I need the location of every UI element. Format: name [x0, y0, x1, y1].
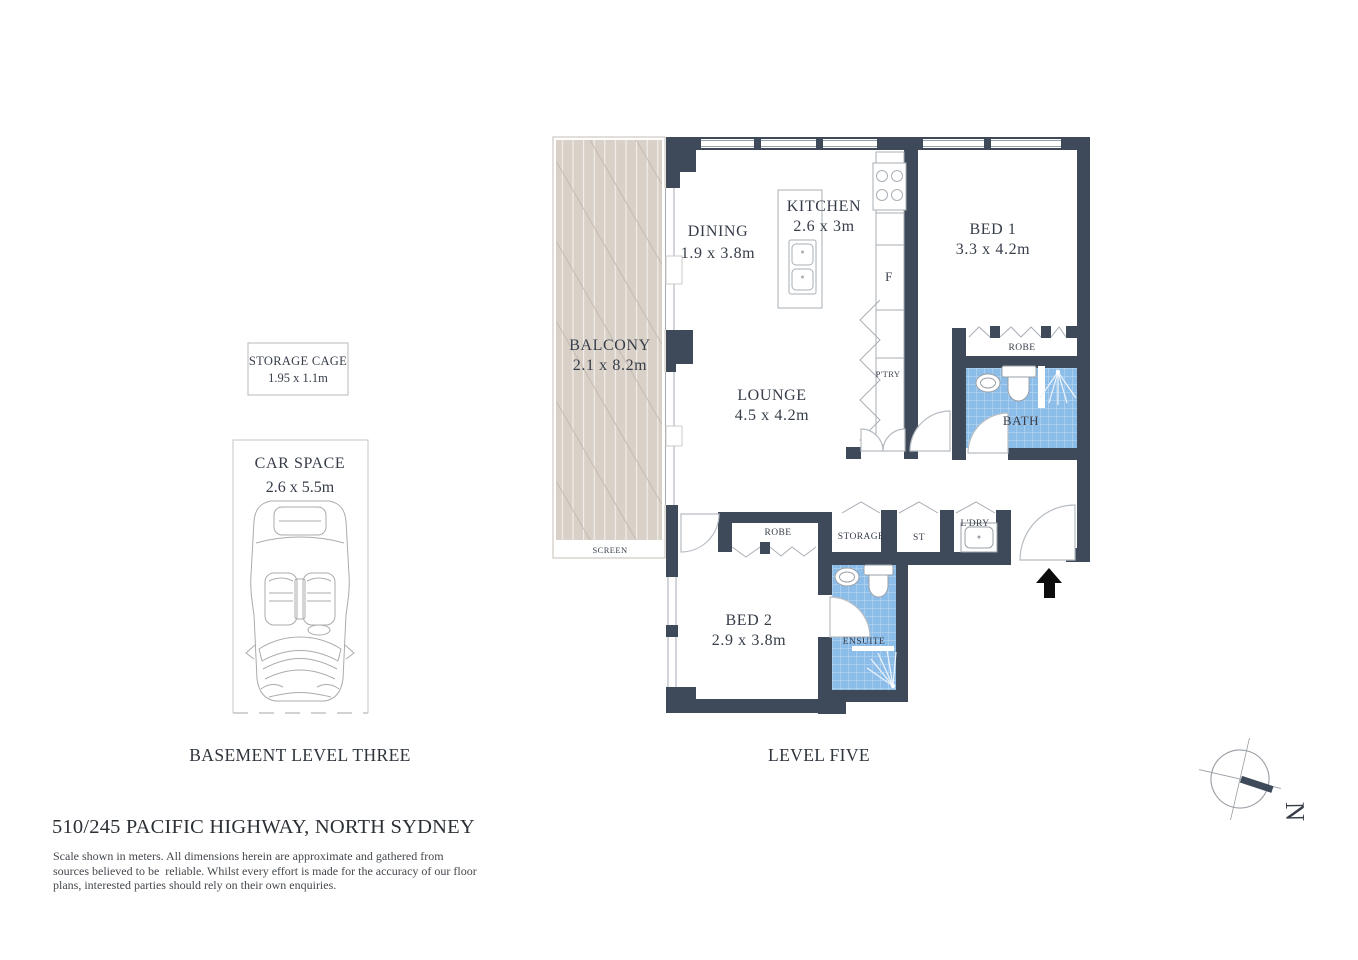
disclaimer-line: Scale shown in meters. All dimensions he… — [53, 849, 477, 864]
dining-label: DINING — [688, 223, 748, 240]
window-frame-mark — [666, 426, 682, 446]
st-label: ST — [913, 533, 925, 543]
disclaimer-line: sources believed to be reliable. Whilst … — [53, 864, 477, 879]
robe-bed2-label: ROBE — [765, 528, 792, 538]
basin-icon — [976, 374, 1000, 392]
disclaimer-text: Scale shown in meters. All dimensions he… — [53, 849, 477, 893]
level-caption: LEVEL FIVE — [704, 745, 934, 766]
address-title: 510/245 PACIFIC HIGHWAY, NORTH SYDNEY — [52, 816, 475, 839]
bed2-dims: 2.9 x 3.8m — [712, 632, 786, 649]
entry-door — [1020, 505, 1075, 560]
bath-label: BATH — [1003, 413, 1039, 428]
car-space-dims: 2.6 x 5.5m — [266, 479, 335, 496]
storage-cage-title: STORAGE CAGE — [249, 354, 347, 368]
entry-arrow-icon — [1036, 568, 1062, 598]
pantry-label: P'TRY — [876, 369, 901, 379]
lounge-dims: 4.5 x 4.2m — [735, 407, 809, 424]
sink-icon — [789, 240, 816, 294]
disclaimer-line: plans, interested parties should rely on… — [53, 878, 477, 893]
laundry-label: L'DRY — [960, 519, 989, 529]
car-icon — [246, 501, 354, 701]
bed2-label: BED 2 — [726, 612, 773, 629]
robe-bed1-label: ROBE — [1009, 343, 1036, 353]
screen-label: SCREEN — [593, 545, 628, 555]
ensuite-label: ENSUITE — [843, 637, 885, 647]
window-frame-mark — [666, 256, 682, 284]
storage-label: STORAGE — [838, 532, 884, 542]
lounge-label: LOUNGE — [737, 387, 806, 404]
stove-icon — [873, 163, 906, 210]
car-space-box: CAR SPACE 2.6 x 5.5m — [233, 440, 368, 713]
bed1-label: BED 1 — [970, 221, 1017, 238]
storage-cage-dims: 1.95 x 1.1m — [268, 371, 328, 385]
dining-dims: 1.9 x 3.8m — [681, 245, 755, 262]
basin-icon — [835, 568, 859, 586]
fridge-label: F — [885, 269, 893, 284]
car-space-title: CAR SPACE — [255, 455, 346, 472]
balcony-dims: 2.1 x 8.2m — [573, 357, 647, 374]
storage-cage-box: STORAGE CAGE 1.95 x 1.1m — [248, 343, 348, 395]
kitchen-label: KITCHEN — [787, 198, 861, 215]
compass-north-label: N — [1280, 802, 1310, 822]
basement-caption: BASEMENT LEVEL THREE — [186, 745, 414, 766]
shower-screen — [1038, 366, 1045, 408]
floorplan-page: STORAGE CAGE 1.95 x 1.1m CAR SPACE 2.6 x… — [0, 0, 1358, 960]
kitchen-dims: 2.6 x 3m — [793, 218, 854, 235]
compass-icon: N — [1190, 729, 1326, 838]
bed2-door — [681, 514, 719, 552]
bed1-dims: 3.3 x 4.2m — [956, 241, 1030, 258]
balcony-label: BALCONY — [569, 337, 651, 354]
